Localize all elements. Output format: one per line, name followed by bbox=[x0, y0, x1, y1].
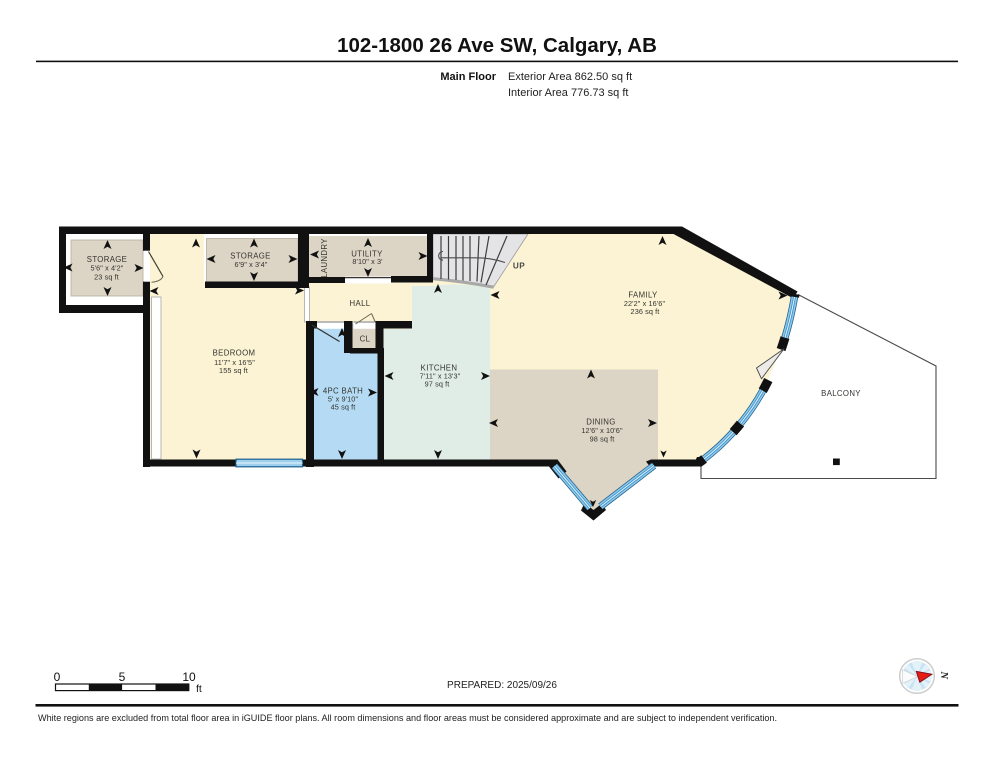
svg-text:UP: UP bbox=[513, 262, 525, 271]
svg-text:HALL: HALL bbox=[350, 299, 371, 308]
svg-text:BEDROOM: BEDROOM bbox=[213, 349, 256, 358]
svg-text:Main Floor: Main Floor bbox=[440, 71, 496, 83]
svg-text:97 sq ft: 97 sq ft bbox=[425, 380, 450, 389]
svg-text:Interior Area 776.73 sq ft: Interior Area 776.73 sq ft bbox=[508, 87, 628, 99]
svg-text:98 sq ft: 98 sq ft bbox=[590, 435, 615, 444]
svg-text:23 sq ft: 23 sq ft bbox=[94, 273, 119, 282]
svg-text:0: 0 bbox=[54, 670, 61, 684]
svg-text:5: 5 bbox=[119, 670, 126, 684]
svg-text:155 sq ft: 155 sq ft bbox=[219, 366, 248, 375]
svg-text:LAUNDRY: LAUNDRY bbox=[320, 238, 329, 278]
svg-text:8'10" x 3': 8'10" x 3' bbox=[352, 257, 383, 266]
svg-text:102-1800 26 Ave SW, Calgary, A: 102-1800 26 Ave SW, Calgary, AB bbox=[337, 34, 657, 57]
svg-text:10: 10 bbox=[182, 670, 196, 684]
svg-text:BALCONY: BALCONY bbox=[821, 389, 861, 398]
svg-text:ft: ft bbox=[196, 683, 202, 695]
svg-text:Exterior Area 862.50 sq ft: Exterior Area 862.50 sq ft bbox=[508, 71, 632, 83]
svg-text:5'6" x 4'2": 5'6" x 4'2" bbox=[90, 264, 123, 273]
svg-text:PREPARED: 2025/09/26: PREPARED: 2025/09/26 bbox=[447, 680, 557, 691]
svg-text:45 sq ft: 45 sq ft bbox=[331, 403, 356, 412]
svg-text:N: N bbox=[938, 671, 949, 680]
svg-text:236 sq ft: 236 sq ft bbox=[631, 307, 660, 316]
svg-text:White regions are excluded fro: White regions are excluded from total fl… bbox=[38, 713, 777, 723]
svg-text:6'9" x 3'4": 6'9" x 3'4" bbox=[234, 260, 267, 269]
svg-text:CL: CL bbox=[360, 335, 371, 344]
